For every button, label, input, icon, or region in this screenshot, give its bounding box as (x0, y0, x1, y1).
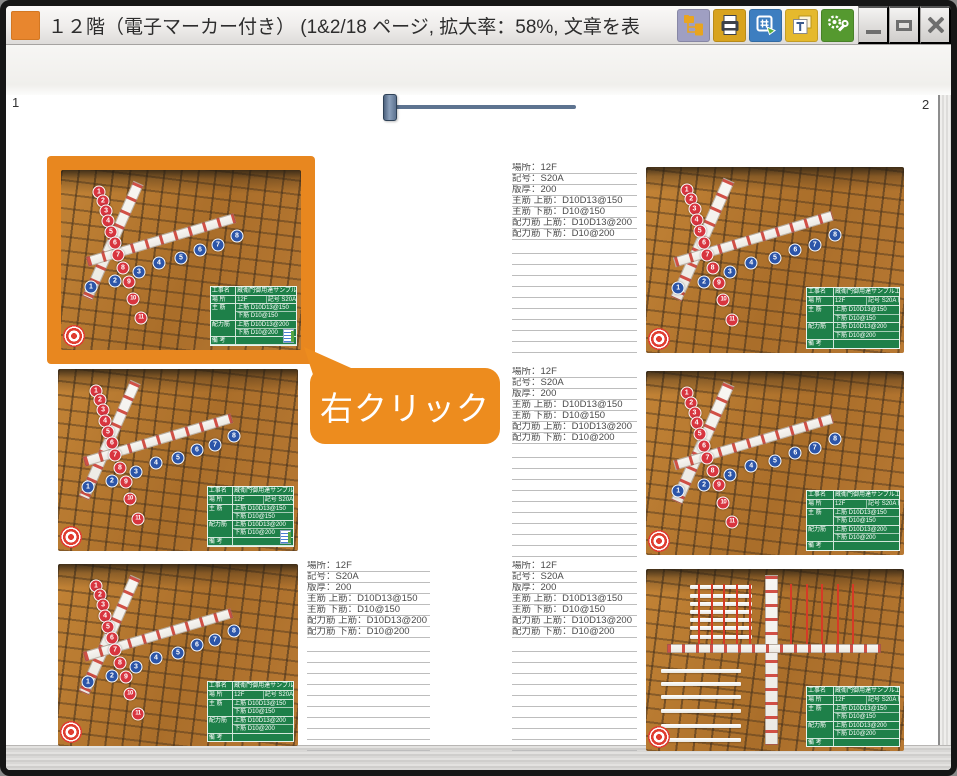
red-spacing-line (711, 584, 713, 646)
red-marker: 6 (106, 631, 119, 644)
blue-marker: 5 (769, 251, 782, 264)
spec-line: 主筋 上筋：D10D13@150 (512, 594, 637, 605)
white-spacer-bar (661, 682, 741, 686)
red-marker: 10 (127, 293, 140, 306)
board-row: 工事名蔵衛門御用達サンプル工事 (807, 687, 899, 696)
red-marker: 6 (106, 436, 119, 449)
board-label: 工事名 (807, 687, 834, 695)
spec-empty-rule (512, 309, 637, 320)
callout-label: 右クリック (320, 382, 490, 430)
spec-empty-rule (512, 447, 637, 458)
blue-marker: 5 (172, 646, 185, 659)
board-label: 主 筋 (807, 509, 834, 525)
board-value: 下筋 D10@200 (834, 534, 899, 541)
board-value (834, 340, 899, 348)
red-marker: 10 (124, 493, 137, 506)
red-marker: 7 (109, 643, 122, 656)
target-marker-icon (60, 721, 82, 743)
rebar-photo[interactable]: 123456789101112345678工事名蔵衛門御用達サンプル工事場 所1… (646, 371, 904, 555)
red-marker: 10 (124, 688, 137, 701)
board-value-stack: 上筋 D10D13@150下筋 D10@150 (233, 700, 293, 716)
board-label: 主 筋 (211, 304, 236, 319)
pages-tree-icon[interactable] (677, 9, 710, 42)
white-spacer-bar (661, 724, 741, 728)
red-marker: 7 (701, 248, 714, 261)
spec-line: 場所：12F (512, 367, 637, 378)
rebar-photo[interactable]: 123456789101112345678工事名蔵衛門御用達サンプル工事場 所1… (58, 369, 298, 551)
target-marker-icon (648, 530, 670, 552)
document-viewer: 1 2 場所：12F記号：S20A版厚：200主筋 上筋：D10D13@150主… (6, 45, 951, 770)
right-gutter (940, 95, 951, 745)
red-marker: 8 (706, 465, 719, 478)
board-value: 下筋 D10@200 (834, 730, 899, 737)
print-icon[interactable] (713, 9, 746, 42)
document-note-icon (283, 329, 294, 343)
spec-empty-rule (512, 524, 637, 535)
board-label: 工事名 (807, 288, 834, 296)
board-value: 下筋 D10@150 (834, 713, 899, 720)
red-marker: 9 (119, 671, 132, 684)
right-click-callout: 右クリック (310, 368, 500, 444)
spec-empty-rule (307, 685, 430, 696)
spec-empty-rule (512, 718, 637, 729)
board-value: 上筋 D10D13@200 (834, 323, 899, 332)
blue-marker: 5 (769, 454, 782, 467)
board-value: 下筋 D10@150 (236, 312, 296, 319)
blue-marker: 8 (227, 624, 240, 637)
white-spacer-bar (661, 669, 741, 673)
blue-marker: 6 (789, 446, 802, 459)
spec-text-block[interactable]: 場所：12F記号：S20A版厚：200主筋 上筋：D10D13@150主筋 下筋… (307, 561, 430, 751)
maximize-icon (896, 20, 912, 31)
spec-empty-rule (307, 707, 430, 718)
board-label: 場 所 (807, 696, 834, 704)
board-label: 備 考 (208, 538, 233, 546)
board-row: 備 考 (807, 542, 899, 550)
spec-line: 主筋 下筋：D10@150 (512, 605, 637, 616)
board-value: 12F (834, 696, 867, 704)
board-value: 蔵衛門御用達サンプル工事 (236, 287, 296, 295)
board-label: 場 所 (807, 297, 834, 305)
maximize-button[interactable] (889, 6, 920, 44)
rebar-photo[interactable]: 工事名蔵衛門御用達サンプル工事場 所12F記号 S20A 版厚 200主 筋上筋… (646, 569, 904, 751)
board-row: 場 所12F記号 S20A 版厚 200 (807, 500, 899, 509)
spec-empty-rule (307, 718, 430, 729)
board-label: 配力筋 (208, 521, 233, 536)
spec-line: 配力筋 下筋：D10@200 (512, 229, 637, 240)
board-label: 備 考 (807, 739, 834, 747)
target-marker-icon (648, 328, 670, 350)
board-value-stack: 上筋 D10D13@150下筋 D10@150 (834, 509, 899, 525)
white-spacer-bar (661, 709, 741, 713)
spec-text-block[interactable]: 場所：12F記号：S20A版厚：200主筋 上筋：D10D13@150主筋 下筋… (512, 561, 637, 751)
board-row: 主 筋上筋 D10D13@150下筋 D10@150 (807, 705, 899, 722)
spec-line: 配力筋 下筋：D10@200 (512, 433, 637, 444)
blue-marker: 2 (698, 478, 711, 491)
board-value: 上筋 D10D13@200 (834, 722, 899, 730)
board-value: 上筋 D10D13@150 (236, 304, 296, 312)
spec-line: 配力筋 上筋：D10D13@200 (512, 422, 637, 433)
board-row: 場 所12F記号 S20A 版厚 200 (807, 696, 899, 705)
board-label: 場 所 (211, 296, 236, 304)
blue-marker: 7 (211, 239, 224, 252)
blue-marker: 7 (208, 633, 221, 646)
board-label: 配力筋 (807, 722, 834, 738)
spec-empty-rule (512, 535, 637, 546)
board-row: 配力筋上筋 D10D13@200下筋 D10@200 (807, 722, 899, 739)
board-value: 記号 S20A 版厚 200 (867, 297, 899, 305)
blue-marker: 1 (672, 281, 685, 294)
site-info-board: 工事名蔵衛門御用達サンプル工事場 所12F記号 S20A 版厚 200主 筋上筋… (806, 287, 900, 349)
red-marker: 9 (122, 275, 135, 288)
board-row: 主 筋上筋 D10D13@150下筋 D10@150 (807, 306, 899, 323)
board-value-stack: 上筋 D10D13@200下筋 D10@200 (834, 323, 899, 339)
blue-marker: 1 (82, 676, 95, 689)
red-marker: 10 (717, 294, 730, 307)
spec-empty-rule (512, 729, 637, 740)
board-label: 主 筋 (807, 705, 834, 721)
board-label: 主 筋 (208, 505, 233, 520)
board-row: 備 考 (807, 340, 899, 348)
board-label: 配力筋 (807, 323, 834, 339)
red-marker: 8 (706, 262, 719, 275)
blue-marker: 5 (172, 451, 185, 464)
red-spacing-line (806, 584, 808, 646)
board-label: 備 考 (211, 337, 236, 345)
board-label: 場 所 (208, 691, 233, 699)
spec-line: 主筋 上筋：D10D13@150 (307, 594, 430, 605)
measuring-rod-vertical (765, 575, 778, 744)
app-window: １２階（電子マーカー付き） (1&2/18 ページ, 拡大率：58%, 文章を表 (0, 0, 957, 776)
board-value: 上筋 D10D13@150 (233, 700, 293, 708)
red-marker: 7 (701, 451, 714, 464)
spec-line: 場所：12F (512, 163, 637, 174)
spec-line: 主筋 下筋：D10@150 (512, 207, 637, 218)
board-label: 工事名 (807, 491, 834, 499)
board-label: 配力筋 (807, 526, 834, 542)
board-row: 場 所12F記号 S20A 版厚 200 (208, 496, 294, 505)
red-spacing-line (749, 584, 751, 646)
spec-empty-rule (512, 276, 637, 287)
blue-marker: 2 (698, 275, 711, 288)
document-note-icon (280, 530, 291, 544)
page-number-left: 1 (12, 95, 19, 110)
page-number-right: 2 (922, 97, 929, 112)
spec-empty-rule (307, 641, 430, 652)
blue-marker: 1 (672, 484, 685, 497)
board-row: 主 筋上筋 D10D13@150下筋 D10@150 (208, 505, 294, 521)
spec-empty-rule (512, 513, 637, 524)
board-label: 主 筋 (208, 700, 233, 716)
board-label: 工事名 (211, 287, 236, 295)
spec-line: 版厚：200 (512, 389, 637, 400)
spec-empty-rule (512, 674, 637, 685)
board-value-stack: 上筋 D10D13@150下筋 D10@150 (236, 304, 296, 319)
spec-line: 版厚：200 (307, 583, 430, 594)
spec-line: 配力筋 上筋：D10D13@200 (307, 616, 430, 627)
spec-line: 版厚：200 (512, 583, 637, 594)
blue-marker: 6 (190, 443, 203, 456)
title-bar: １２階（電子マーカー付き） (1&2/18 ページ, 拡大率：58%, 文章を表 (6, 6, 951, 45)
board-row: 配力筋上筋 D10D13@200下筋 D10@200 (807, 526, 899, 543)
measuring-rod-horizontal (667, 644, 881, 653)
board-value-stack: 上筋 D10D13@150下筋 D10@150 (834, 306, 899, 322)
spec-empty-rule (307, 652, 430, 663)
blue-marker: 2 (106, 475, 119, 488)
board-label: 配力筋 (211, 321, 236, 336)
minimize-icon (866, 30, 881, 34)
board-row: 工事名蔵衛門御用達サンプル工事 (211, 287, 297, 296)
board-value: 上筋 D10D13@200 (834, 526, 899, 534)
red-spacing-line (790, 584, 792, 646)
spec-empty-rule (307, 674, 430, 685)
board-label: 工事名 (208, 682, 233, 690)
board-value: 記号 S20A 版厚 200 (267, 296, 297, 304)
rebar-photo[interactable]: 123456789101112345678工事名蔵衛門御用達サンプル工事場 所1… (58, 564, 298, 746)
rebar-photo[interactable]: 123456789101112345678工事名蔵衛門御用達サンプル工事場 所1… (61, 170, 301, 350)
board-value: 記号 S20A 版厚 200 (867, 500, 899, 508)
red-spacing-line (723, 584, 725, 646)
board-row: 工事名蔵衛門御用達サンプル工事 (807, 491, 899, 500)
spec-empty-rule (307, 740, 430, 751)
board-value: 上筋 D10D13@200 (233, 717, 293, 725)
spec-line: 主筋 下筋：D10@150 (307, 605, 430, 616)
spec-empty-rule (512, 663, 637, 674)
board-value: 蔵衛門御用達サンプル工事 (834, 491, 899, 499)
white-spacer-bar (661, 695, 741, 699)
red-marker: 11 (134, 311, 147, 324)
spec-empty-rule (512, 331, 637, 342)
spec-line: 記号：S20A (512, 378, 637, 389)
blue-marker: 4 (152, 257, 165, 270)
board-label: 主 筋 (807, 306, 834, 322)
blue-marker: 3 (723, 469, 736, 482)
window-title: １２階（電子マーカー付き） (1&2/18 ページ, 拡大率：58%, 文章を表 (48, 12, 677, 39)
site-info-board: 工事名蔵衛門御用達サンプル工事場 所12F記号 S20A 版厚 200主 筋上筋… (207, 681, 295, 742)
board-row: 主 筋上筋 D10D13@150下筋 D10@150 (807, 509, 899, 526)
blue-marker: 7 (208, 438, 221, 451)
board-label: 場 所 (208, 496, 233, 504)
red-marker: 11 (131, 512, 144, 525)
spec-line: 配力筋 下筋：D10@200 (512, 627, 637, 638)
red-marker: 10 (717, 496, 730, 509)
white-spacer-bar (661, 738, 741, 742)
board-row: 場 所12F記号 S20A 版厚 200 (208, 691, 294, 700)
board-row: 主 筋上筋 D10D13@150下筋 D10@150 (208, 700, 294, 717)
board-value: 下筋 D10@150 (233, 708, 293, 715)
red-marker: 6 (698, 439, 711, 452)
board-value: 上筋 D10D13@200 (236, 321, 296, 329)
spec-empty-rule (512, 546, 637, 557)
spec-empty-rule (512, 298, 637, 309)
red-spacing-line (821, 584, 823, 646)
board-value: 蔵衛門御用達サンプル工事 (233, 487, 293, 495)
spec-line: 場所：12F (512, 561, 637, 572)
red-marker: 9 (713, 479, 726, 492)
board-value: 蔵衛門御用達サンプル工事 (233, 682, 293, 690)
board-value: 蔵衛門御用達サンプル工事 (834, 288, 899, 296)
red-spacing-line (698, 584, 700, 646)
red-marker: 8 (113, 657, 126, 670)
red-marker: 8 (113, 462, 126, 475)
board-value: 12F (236, 296, 267, 304)
spec-empty-rule (512, 254, 637, 265)
red-marker: 11 (725, 516, 738, 529)
board-value: 12F (834, 297, 867, 305)
board-label: 備 考 (807, 340, 834, 348)
board-row: 配力筋上筋 D10D13@200下筋 D10@200 (208, 717, 294, 734)
board-value (834, 739, 899, 747)
spec-empty-rule (512, 469, 637, 480)
spec-empty-rule (307, 729, 430, 740)
board-value: 上筋 D10D13@150 (233, 505, 293, 513)
spec-empty-rule (512, 480, 637, 491)
red-marker: 11 (131, 707, 144, 720)
red-marker: 11 (725, 313, 738, 326)
spec-empty-rule (512, 685, 637, 696)
window-controls (858, 6, 951, 44)
board-row: 備 考 (208, 734, 294, 742)
blue-marker: 8 (829, 229, 842, 242)
board-value (834, 542, 899, 550)
red-marker: 7 (109, 448, 122, 461)
spec-line: 記号：S20A (512, 174, 637, 185)
red-spacing-line (736, 584, 738, 646)
blue-marker: 6 (789, 243, 802, 256)
board-label: 場 所 (807, 500, 834, 508)
blue-marker: 5 (175, 252, 188, 265)
spec-empty-rule (512, 243, 637, 254)
spec-text-block[interactable]: 場所：12F記号：S20A版厚：200主筋 上筋：D10D13@150主筋 下筋… (512, 163, 637, 353)
board-value (233, 734, 293, 742)
blue-marker: 3 (130, 661, 143, 674)
board-value: 上筋 D10D13@150 (834, 509, 899, 517)
blue-marker: 2 (109, 275, 122, 288)
spec-text-block[interactable]: 場所：12F記号：S20A版厚：200主筋 上筋：D10D13@150主筋 下筋… (512, 367, 637, 557)
spec-empty-rule (512, 458, 637, 469)
board-value: 上筋 D10D13@200 (233, 521, 293, 529)
red-marker: 9 (713, 276, 726, 289)
blue-marker: 7 (808, 238, 821, 251)
board-value-stack: 上筋 D10D13@200下筋 D10@200 (834, 526, 899, 542)
blue-marker: 8 (230, 230, 243, 243)
toolbar (677, 9, 854, 42)
app-icon (11, 11, 40, 40)
board-row: 工事名蔵衛門御用達サンプル工事 (208, 487, 294, 496)
board-row: 主 筋上筋 D10D13@150下筋 D10@150 (211, 304, 297, 320)
blue-marker: 6 (190, 638, 203, 651)
spec-empty-rule (512, 502, 637, 513)
red-marker: 8 (116, 261, 129, 274)
spec-empty-rule (512, 707, 637, 718)
board-value: 蔵衛門御用達サンプル工事 (834, 687, 899, 695)
close-icon (927, 16, 943, 34)
spec-line: 配力筋 下筋：D10@200 (307, 627, 430, 638)
board-value: 下筋 D10@150 (233, 513, 293, 520)
board-value: 12F (233, 691, 264, 699)
spec-line: 記号：S20A (512, 572, 637, 583)
blue-marker: 2 (106, 670, 119, 683)
board-value: 下筋 D10@200 (834, 332, 899, 340)
blue-marker: 1 (85, 281, 98, 294)
board-value-stack: 上筋 D10D13@150下筋 D10@150 (834, 705, 899, 721)
board-value: 上筋 D10D13@150 (834, 705, 899, 713)
spec-empty-rule (512, 740, 637, 751)
blue-marker: 7 (808, 441, 821, 454)
spec-line: 記号：S20A (307, 572, 430, 583)
close-button[interactable] (920, 6, 951, 44)
spec-empty-rule (512, 652, 637, 663)
board-value: 下筋 D10@150 (834, 315, 899, 323)
board-value: 記号 S20A 版厚 200 (867, 696, 899, 704)
blue-marker: 4 (149, 652, 162, 665)
board-label: 備 考 (208, 734, 233, 742)
spec-empty-rule (512, 342, 637, 353)
board-row: 場 所12F記号 S20A 版厚 200 (211, 296, 297, 305)
spec-empty-rule (512, 265, 637, 276)
board-value: 下筋 D10@150 (834, 517, 899, 524)
spec-line: 主筋 上筋：D10D13@150 (512, 400, 637, 411)
blue-marker: 4 (745, 460, 758, 473)
spec-line: 主筋 下筋：D10@150 (512, 411, 637, 422)
site-info-board: 工事名蔵衛門御用達サンプル工事場 所12F記号 S20A 版厚 200主 筋上筋… (806, 490, 900, 552)
spec-empty-rule (512, 696, 637, 707)
spec-line: 版厚：200 (512, 185, 637, 196)
blue-marker: 1 (82, 481, 95, 494)
board-label: 工事名 (208, 487, 233, 495)
blue-marker: 8 (227, 429, 240, 442)
red-marker: 7 (112, 248, 125, 261)
blue-marker: 3 (723, 266, 736, 279)
spec-empty-rule (512, 287, 637, 298)
numbering-stamp-icon[interactable] (749, 9, 782, 42)
board-value: 記号 S20A 版厚 200 (264, 496, 294, 504)
site-info-board: 工事名蔵衛門御用達サンプル工事場 所12F記号 S20A 版厚 200主 筋上筋… (207, 486, 295, 547)
settings-icon[interactable] (821, 9, 854, 42)
board-row: 工事名蔵衛門御用達サンプル工事 (208, 682, 294, 691)
blue-marker: 8 (829, 432, 842, 445)
spec-line: 主筋 上筋：D10D13@150 (512, 196, 637, 207)
target-marker-icon (648, 726, 670, 748)
zoom-slider-thumb[interactable] (383, 94, 397, 121)
target-marker-icon (63, 325, 85, 347)
spec-empty-rule (307, 663, 430, 674)
spec-empty-rule (512, 320, 637, 331)
spec-empty-rule (512, 641, 637, 652)
zoom-slider-track[interactable] (390, 105, 576, 109)
blue-marker: 6 (193, 243, 206, 256)
board-value-stack: 上筋 D10D13@200下筋 D10@200 (233, 717, 293, 733)
rebar-photo[interactable]: 123456789101112345678工事名蔵衛門御用達サンプル工事場 所1… (646, 167, 904, 353)
blue-marker: 3 (133, 266, 146, 279)
spec-empty-rule (512, 491, 637, 502)
red-marker: 6 (698, 236, 711, 249)
text-stamp-icon[interactable] (785, 9, 818, 42)
red-marker: 9 (119, 476, 132, 489)
spec-empty-rule (307, 696, 430, 707)
site-info-board: 工事名蔵衛門御用達サンプル工事場 所12F記号 S20A 版厚 200主 筋上筋… (210, 286, 298, 346)
board-row: 配力筋上筋 D10D13@200下筋 D10@200 (807, 323, 899, 340)
board-value: 下筋 D10@200 (233, 725, 293, 732)
board-value: 12F (834, 500, 867, 508)
blue-marker: 4 (149, 457, 162, 470)
zoom-toolbar-strip (6, 45, 951, 95)
blue-marker: 4 (745, 257, 758, 270)
spec-line: 配力筋 上筋：D10D13@200 (512, 218, 637, 229)
minimize-button[interactable] (858, 6, 889, 44)
spec-line: 配力筋 上筋：D10D13@200 (512, 616, 637, 627)
board-value-stack: 上筋 D10D13@150下筋 D10@150 (233, 505, 293, 520)
